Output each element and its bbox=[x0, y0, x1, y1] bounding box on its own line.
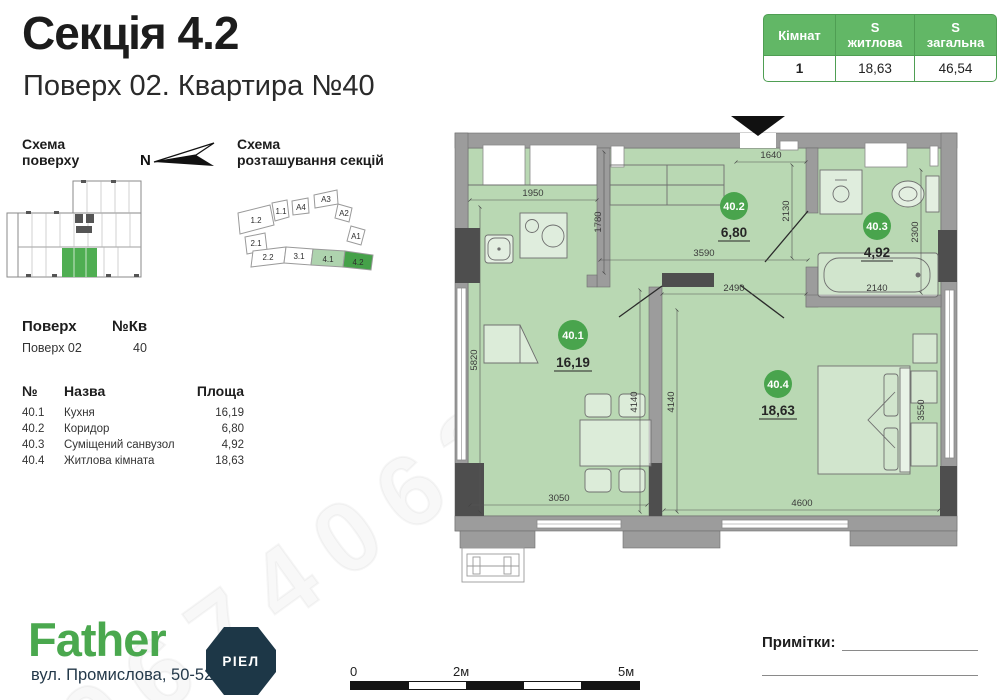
floor-plan-sheet: 0674062007 Секція 4.2 Поверх 02. Квартир… bbox=[0, 0, 997, 700]
svg-text:4.1: 4.1 bbox=[322, 255, 334, 264]
section-schema-label: Схема розташування секцій bbox=[237, 136, 384, 168]
apt-number-label: №Кв bbox=[112, 318, 147, 335]
apt-number-value: 40 bbox=[133, 341, 147, 355]
dim-1640: 1640 bbox=[760, 150, 781, 161]
svg-text:1.1: 1.1 bbox=[275, 207, 287, 216]
scale-0-label: 0 bbox=[350, 664, 357, 679]
north-arrow-icon: N bbox=[130, 138, 216, 172]
apartment-summary-table: Кімнат S житлова S загальна 1 18,63 46,5… bbox=[763, 14, 997, 82]
notes-label: Примітки: bbox=[762, 634, 836, 651]
room-area-40-3: 4,92 bbox=[864, 245, 890, 260]
notes-line bbox=[762, 676, 978, 700]
summary-value-total-area: 46,54 bbox=[915, 56, 996, 81]
room-area-40-2: 6,80 bbox=[721, 225, 747, 240]
brand-address: вул. Промислова, 50-52 bbox=[31, 666, 213, 685]
room-area-40-1: 16,19 bbox=[556, 355, 590, 370]
table-row: 40.3 Суміщений санвузол 4,92 bbox=[22, 437, 244, 453]
svg-text:2.2: 2.2 bbox=[262, 253, 274, 262]
scale-2m-label: 2м bbox=[453, 664, 469, 679]
dim-1950: 1950 bbox=[522, 188, 543, 199]
page-title: Секція 4.2 bbox=[22, 6, 238, 60]
floor-schema-label: Схема поверху bbox=[22, 136, 79, 168]
dim-5820: 5820 bbox=[469, 349, 480, 370]
riel-badge: РІЕЛ bbox=[203, 624, 279, 698]
dim-2130: 2130 bbox=[781, 200, 792, 221]
svg-text:A1: A1 bbox=[351, 232, 361, 241]
notes-line bbox=[842, 636, 979, 651]
summary-header-living-area: S житлова bbox=[836, 15, 914, 55]
dim-3550: 3550 bbox=[916, 399, 927, 420]
dim-3590: 3590 bbox=[693, 248, 714, 259]
svg-text:A2: A2 bbox=[339, 209, 349, 218]
svg-text:3.1: 3.1 bbox=[293, 252, 305, 261]
dim-4140-left: 4140 bbox=[629, 391, 640, 412]
summary-header-rooms: Кімнат bbox=[764, 15, 835, 55]
dim-1780: 1780 bbox=[593, 211, 604, 232]
highlighted-apartment bbox=[62, 248, 97, 277]
svg-text:A3: A3 bbox=[321, 195, 331, 204]
balcony-outline bbox=[462, 548, 524, 582]
room-id-40-4: 40.4 bbox=[767, 379, 789, 391]
svg-text:2.1: 2.1 bbox=[250, 239, 262, 248]
table-row: 40.1 Кухня 16,19 bbox=[22, 405, 244, 421]
floor-label: Поверх bbox=[22, 318, 77, 335]
dim-4600: 4600 bbox=[791, 498, 812, 509]
svg-text:1.2: 1.2 bbox=[250, 216, 262, 225]
scale-5m-label: 5м bbox=[618, 664, 634, 679]
floor-schema-map bbox=[6, 180, 142, 279]
section-schema-map: 1.2 1.1 A4 A3 A2 A1 2.1 2.2 3.1 4.1 4.2 bbox=[237, 182, 392, 282]
dim-2490: 2490 bbox=[723, 283, 744, 294]
room-id-40-2: 40.2 bbox=[723, 201, 744, 213]
north-label: N bbox=[140, 152, 151, 169]
table-row: 1 18,63 46,54 bbox=[764, 56, 996, 81]
room-id-40-3: 40.3 bbox=[866, 221, 887, 233]
summary-header-total-area: S загальна bbox=[915, 15, 996, 55]
riel-badge-label: РІЕЛ bbox=[222, 654, 259, 669]
summary-value-rooms: 1 bbox=[764, 56, 835, 81]
scale-bar-segments bbox=[350, 681, 640, 690]
svg-text:A4: A4 bbox=[296, 203, 306, 212]
notes-line bbox=[762, 651, 978, 676]
table-row: 40.2 Коридор 6,80 bbox=[22, 421, 244, 437]
svg-text:4.2: 4.2 bbox=[352, 258, 364, 267]
brand-logo: Father bbox=[28, 612, 166, 667]
dim-2140: 2140 bbox=[866, 283, 887, 294]
floor-value: Поверх 02 bbox=[22, 341, 82, 355]
room-area-40-4: 18,63 bbox=[761, 403, 795, 418]
dim-4140-right: 4140 bbox=[666, 391, 677, 412]
scale-bar: 0 2м 5м bbox=[350, 664, 642, 694]
room-id-40-1: 40.1 bbox=[562, 330, 583, 342]
rooms-table: № Назва Площа 40.1 Кухня 16,19 40.2 Кори… bbox=[22, 381, 244, 469]
table-row: 40.4 Житлова кімната 18,63 bbox=[22, 453, 244, 469]
apartment-plan: 1950 1640 3590 2490 2140 1780 2130 2300 … bbox=[440, 110, 960, 610]
page-subtitle: Поверх 02. Квартира №40 bbox=[23, 70, 375, 103]
dim-3050: 3050 bbox=[548, 493, 569, 504]
notes-block: Примітки: bbox=[762, 634, 978, 700]
summary-value-living-area: 18,63 bbox=[836, 56, 914, 81]
dim-2300: 2300 bbox=[910, 221, 921, 242]
